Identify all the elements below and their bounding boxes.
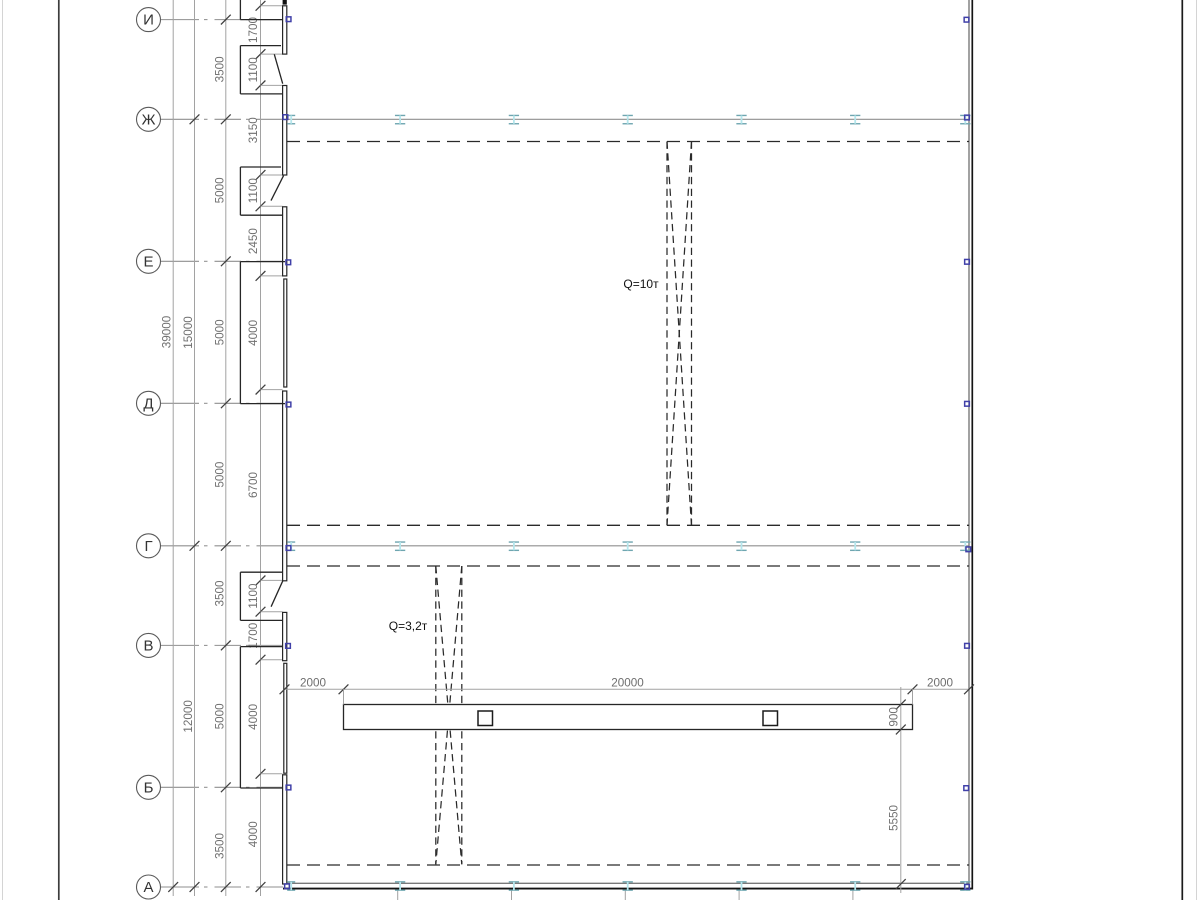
svg-text:И: И: [143, 12, 154, 29]
svg-text:Г: Г: [144, 538, 152, 555]
svg-text:4000: 4000: [247, 703, 260, 730]
svg-text:Q=3,2т: Q=3,2т: [389, 619, 428, 633]
svg-text:5550: 5550: [888, 805, 901, 832]
svg-text:4000: 4000: [247, 821, 260, 848]
svg-text:2000: 2000: [300, 677, 327, 690]
svg-text:15000: 15000: [182, 316, 195, 349]
svg-text:39000: 39000: [160, 315, 173, 348]
svg-text:Е: Е: [143, 253, 153, 270]
svg-text:3500: 3500: [214, 56, 227, 83]
svg-text:3500: 3500: [214, 833, 227, 860]
svg-text:20000: 20000: [611, 677, 644, 690]
svg-text:1100: 1100: [247, 57, 260, 83]
svg-text:В: В: [143, 637, 153, 654]
svg-text:5000: 5000: [214, 703, 227, 730]
svg-text:6700: 6700: [247, 472, 260, 499]
svg-text:Б: Б: [144, 779, 154, 796]
svg-text:5000: 5000: [214, 319, 227, 346]
svg-text:Д: Д: [143, 395, 153, 412]
svg-text:900: 900: [888, 707, 901, 727]
svg-text:Q=10т: Q=10т: [623, 277, 659, 291]
svg-text:2450: 2450: [247, 228, 260, 255]
svg-text:5000: 5000: [214, 177, 227, 204]
svg-text:3150: 3150: [247, 117, 260, 144]
svg-text:1700: 1700: [247, 622, 260, 649]
svg-text:3500: 3500: [214, 580, 227, 607]
svg-text:1100: 1100: [247, 583, 260, 609]
svg-text:2000: 2000: [927, 677, 954, 690]
svg-text:4000: 4000: [247, 319, 260, 346]
svg-text:5000: 5000: [214, 461, 227, 488]
svg-text:Ж: Ж: [142, 111, 156, 128]
svg-text:1700: 1700: [247, 17, 260, 44]
svg-text:А: А: [143, 879, 153, 896]
svg-text:12000: 12000: [182, 700, 195, 733]
svg-text:1100: 1100: [247, 178, 260, 204]
